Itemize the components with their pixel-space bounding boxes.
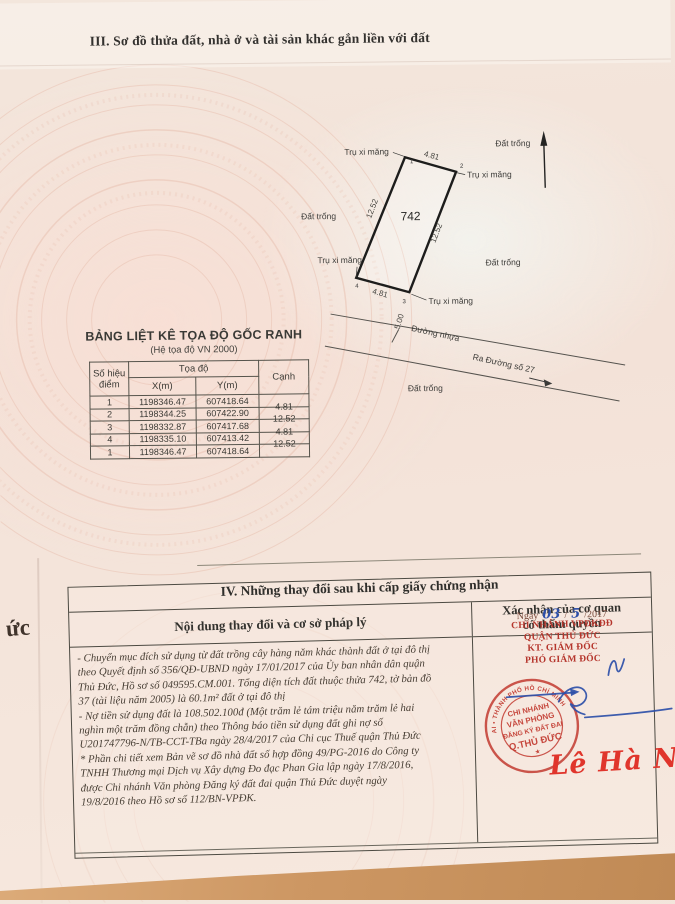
x-cell: 1198346.47 <box>129 445 196 458</box>
edge-cell: 4.81 <box>259 394 309 407</box>
y-cell: 607417.68 <box>196 419 259 432</box>
coord-table: Số hiệu điểm Tọa độ Cạnh X(m) Y(m) 1 119… <box>89 359 310 459</box>
section4-columns: Nội dung thay đổi và cơ sở pháp lý - Chu… <box>69 598 657 854</box>
north-arrow-icon <box>540 131 548 188</box>
coord-header-row: Số hiệu điểm Tọa độ Cạnh <box>90 360 309 378</box>
vacant-label: Đất trống <box>301 211 336 221</box>
col-point-l2: điểm <box>92 379 126 390</box>
leader-line <box>393 152 404 156</box>
coord-row: 1 1198346.47 607418.64 4.81 <box>90 394 309 409</box>
edge-value: 12.52 <box>273 439 296 449</box>
col-x-header: X(m) <box>129 377 196 396</box>
edge-value: 12.52 <box>273 414 296 424</box>
dim-top: 4.81 <box>423 149 441 162</box>
post-label: Trụ xi măng <box>467 169 512 179</box>
point-cell: 2 <box>90 408 129 421</box>
col-point-l1: Số hiệu <box>92 368 126 379</box>
vacant-label: Đất trống <box>495 138 530 148</box>
point-cell: 1 <box>90 396 129 409</box>
edge-value: 4.81 <box>275 426 293 436</box>
col-edge-header: Cạnh <box>259 360 309 395</box>
scanned-certificate-page: III. Sơ đồ thửa đất, nhà ở và tài sản kh… <box>0 0 675 904</box>
col-coord-header: Tọa độ <box>129 360 259 377</box>
road-width: 5.00 <box>393 312 406 330</box>
col-point-header: Số hiệu điểm <box>90 362 129 396</box>
corner-label: 2 <box>460 164 464 170</box>
y-cell: 607418.64 <box>196 394 259 407</box>
coord-table-subtitle: (Hệ tọa độ VN 2000) <box>83 343 305 356</box>
dim-tick <box>392 329 399 342</box>
changes-content: - Chuyển mục đích sử dụng từ đất trồng c… <box>70 637 476 810</box>
road-direction-label: Ra Đường số 27 <box>472 352 536 375</box>
y-cell: 607418.64 <box>196 444 259 457</box>
vacant-label: Đất trống <box>486 257 521 267</box>
parcel-diagram: 1 2 3 4 742 4.81 12.52 12.52 4.81 Trụ xi… <box>267 122 675 431</box>
point-cell: 1 <box>90 446 129 459</box>
authority-block: CHI NHÁNH VPĐKĐĐ QUẬN THỦ ĐỨC KT. GIÁM Đ… <box>472 618 652 669</box>
corner-label: 4 <box>355 284 359 290</box>
corner-label: 3 <box>402 299 406 305</box>
margin-text-fragment: ức <box>5 614 31 642</box>
dim-bottom: 4.81 <box>371 287 389 300</box>
x-cell: 1198344.25 <box>129 407 196 420</box>
leader-line <box>411 294 426 300</box>
post-label: Trụ xi măng <box>344 146 389 156</box>
post-label: Trụ xi măng <box>317 255 362 265</box>
coord-table-title: BẢNG LIỆT KÊ TỌA ĐỘ GỐC RANH <box>83 327 305 343</box>
y-cell: 607422.90 <box>196 407 259 420</box>
edge-value: 4.81 <box>275 401 293 411</box>
post-label: Trụ xi măng <box>428 296 473 306</box>
col-y-header: Y(m) <box>196 376 259 395</box>
x-cell: 1198346.47 <box>129 395 196 408</box>
changes-column: Nội dung thay đổi và cơ sở pháp lý - Chu… <box>69 602 478 852</box>
point-cell: 4 <box>90 433 129 446</box>
road-edge-line <box>325 343 620 404</box>
vacant-label: Đất trống <box>408 383 443 393</box>
dim-left: 12.52 <box>364 197 380 219</box>
road-surface-label: Đường nhựa <box>410 323 460 343</box>
section4-table: IV. Những thay đổi sau khi cấp giấy chứn… <box>67 572 658 859</box>
y-cell: 607413.42 <box>196 432 259 445</box>
point-cell: 3 <box>90 421 129 434</box>
leader-line <box>457 173 465 175</box>
confirmation-column: Xác nhận của cơ quan có thẩm quyền Ngày … <box>472 598 657 843</box>
x-cell: 1198332.87 <box>129 420 196 433</box>
parcel-number: 742 <box>400 209 420 223</box>
x-cell: 1198335.10 <box>129 432 196 445</box>
